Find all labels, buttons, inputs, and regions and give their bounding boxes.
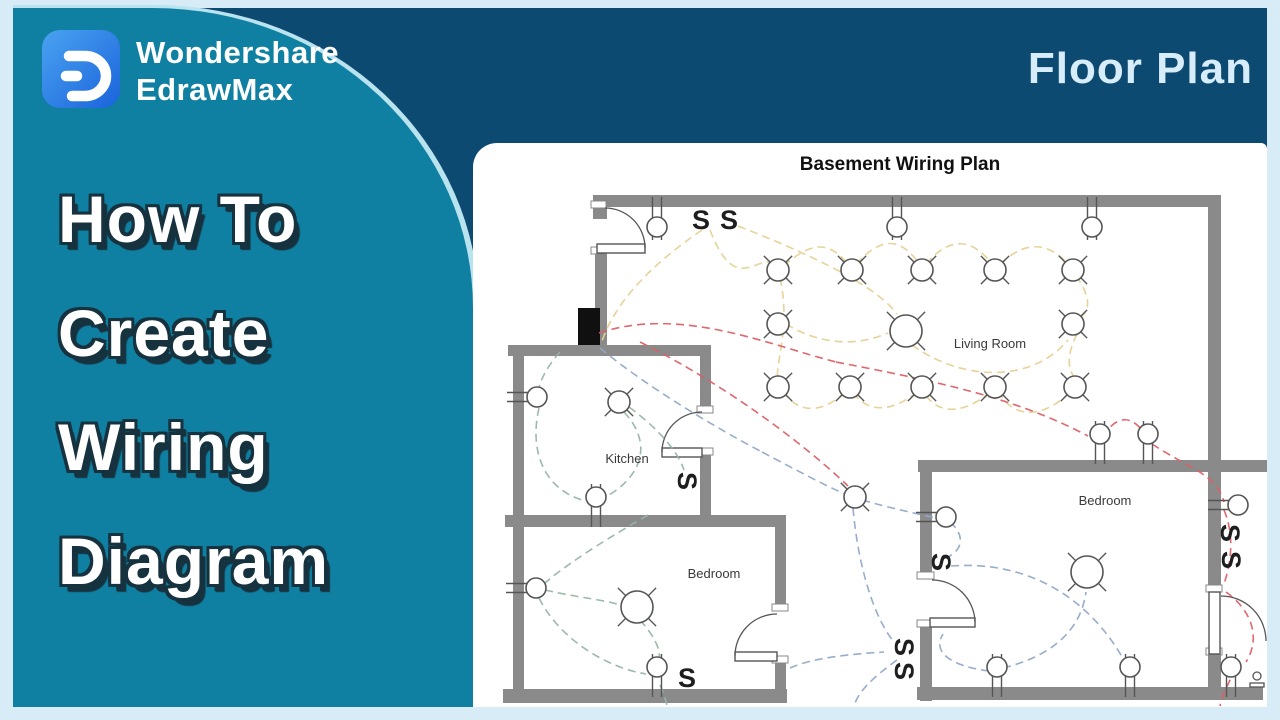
wire-branch-blue (940, 634, 989, 671)
wall (775, 662, 786, 703)
switch-symbol: S (692, 205, 710, 235)
wire-lighting-circuit (999, 392, 1070, 412)
light-ray (1081, 310, 1087, 316)
ceiling-light-icon (841, 259, 863, 281)
electrical-panel (578, 308, 600, 345)
ceiling-light-icon (1062, 313, 1084, 335)
brand-line-edrawmax: EdrawMax (136, 71, 339, 108)
light-ray (648, 618, 656, 626)
ceiling-light-icon (984, 259, 1006, 281)
wall-sconce-icon (1228, 495, 1248, 515)
wire-lighting-circuit (783, 391, 845, 408)
wall (513, 345, 524, 515)
wire-branch-blue (948, 522, 960, 557)
wall (513, 515, 524, 701)
wire-power-circuit (1224, 510, 1231, 584)
wire-lighting-circuit (856, 244, 918, 265)
light-ray (930, 373, 936, 379)
wall-fixture-icon (1138, 424, 1158, 444)
door-leaf (662, 448, 702, 457)
wire-power-circuit (1226, 592, 1253, 662)
switch-symbol: S (678, 663, 696, 693)
light-ray (1061, 395, 1067, 401)
light-ray (930, 278, 936, 284)
room-label: Bedroom (1079, 493, 1132, 508)
light-ray (605, 388, 611, 394)
headline-line-3: Wiring (58, 390, 329, 504)
wire-power-circuit (836, 362, 1088, 436)
floor-plan-drawing: SSSSSSSSSLiving RoomKitchenBedroomBedroo… (473, 143, 1267, 707)
ceiling-light-icon (767, 313, 789, 335)
light-ray (764, 332, 770, 338)
ceiling-light-icon (890, 315, 922, 347)
wire-lighting-circuit (1069, 334, 1077, 378)
door-leaf (1209, 592, 1220, 654)
light-ray (908, 373, 914, 379)
ceiling-light-icon (767, 376, 789, 398)
door-swing-arc (605, 208, 645, 248)
room-label: Kitchen (605, 451, 648, 466)
door-swing-arc (662, 412, 702, 452)
door-jamb (772, 604, 788, 611)
light-ray (1068, 583, 1076, 591)
brand-line-wondershare: Wondershare (136, 34, 339, 71)
wire-branch-blue (853, 508, 894, 642)
ceiling-light-icon (1064, 376, 1086, 398)
logo-glyph-icon (42, 30, 120, 108)
door-swing-arc (932, 580, 975, 622)
light-ray (605, 410, 611, 416)
ceiling-light-icon (844, 486, 866, 508)
door-leaf (930, 618, 975, 627)
door-leaf (597, 244, 645, 253)
wall (1221, 460, 1267, 472)
wall (1208, 654, 1221, 700)
light-ray (1003, 373, 1009, 379)
electrical-panel-icon (578, 308, 600, 345)
wall (508, 345, 711, 356)
light-ray (618, 618, 626, 626)
light-ray (618, 588, 626, 596)
room-label: Bedroom (688, 566, 741, 581)
light-ray (1003, 278, 1009, 284)
wall-fixture-icon (586, 487, 606, 507)
light-ray (786, 373, 792, 379)
light-ray (786, 310, 792, 316)
headline-line-2: Create (58, 276, 329, 390)
door-jamb (917, 572, 934, 579)
wire-lighting-circuit (710, 230, 775, 268)
door-jamb (591, 201, 606, 208)
ceiling-light-icon (984, 376, 1006, 398)
light-ray (1083, 395, 1089, 401)
light-ray (764, 373, 770, 379)
light-ray (764, 395, 770, 401)
wall-fixture-icon (1082, 217, 1102, 237)
light-ray (836, 373, 842, 379)
ceiling-light-icon (1062, 259, 1084, 281)
light-ray (1003, 395, 1009, 401)
wire-lighting-circuit (786, 324, 888, 342)
wall-sconce-icon (527, 387, 547, 407)
light-ray (838, 278, 844, 284)
light-ray (1059, 332, 1065, 338)
switch-symbol: S (889, 638, 919, 656)
wire-branch-blue (790, 652, 884, 668)
light-ray (841, 505, 847, 511)
room-label: Living Room (954, 336, 1026, 351)
light-ray (858, 373, 864, 379)
wall-sconce-icon (526, 578, 546, 598)
light-ray (981, 395, 987, 401)
wall (593, 195, 1220, 207)
doorbell-icon (1253, 672, 1261, 680)
light-ray (887, 342, 895, 350)
light-ray (764, 278, 770, 284)
wire-branch-green (536, 408, 586, 501)
light-ray (1098, 553, 1106, 561)
light-ray (1059, 310, 1065, 316)
ceiling-light-icon (1071, 556, 1103, 588)
edrawmax-logo-icon (42, 30, 120, 108)
light-ray (786, 278, 792, 284)
wall-sconces (506, 387, 1248, 598)
room-labels: Living RoomKitchenBedroomBedroom (605, 336, 1131, 581)
wire-branch-green (545, 590, 620, 605)
wall (503, 689, 787, 703)
switch-symbol: S (720, 205, 738, 235)
switch-symbol: S (672, 472, 702, 490)
light-ray (627, 388, 633, 394)
headline-line-4: Diagram (58, 504, 329, 618)
wire-lighting-circuit (926, 244, 992, 264)
switch-symbol: S (926, 553, 956, 571)
wire-branch-blue (1003, 592, 1086, 668)
switch-symbol: S (889, 662, 919, 680)
light-ray (863, 505, 869, 511)
wall (1208, 195, 1221, 466)
light-ray (1083, 373, 1089, 379)
light-ray (648, 588, 656, 596)
light-ray (1059, 278, 1065, 284)
light-ray (1003, 256, 1009, 262)
ceiling-light-icon (767, 259, 789, 281)
wall (775, 515, 786, 610)
door-swing-arc (735, 614, 777, 656)
light-ray (1059, 256, 1065, 262)
ceiling-light-icon (839, 376, 861, 398)
wall-fixture-icon (647, 217, 667, 237)
wire-branch-blue (762, 452, 845, 494)
ceiling-light-icon (621, 591, 653, 623)
wall-fixture-icon (1221, 657, 1241, 677)
door-swing-arc (1221, 596, 1266, 641)
switch-symbol: S (1216, 551, 1246, 569)
light-ray (1081, 278, 1087, 284)
wall-sconce-icon (936, 507, 956, 527)
wall-fixture-icon (887, 217, 907, 237)
wall-fixture-icon (1090, 424, 1110, 444)
wire-lighting-circuit (738, 226, 897, 314)
ceiling-light-icon (608, 391, 630, 413)
light-ray (1068, 553, 1076, 561)
ceiling-light-icon (911, 376, 933, 398)
wire-power-circuit (599, 324, 836, 362)
wall-fixture-icon (987, 657, 1007, 677)
doorbell-base (1250, 683, 1264, 687)
light-ray (981, 373, 987, 379)
light-ray (1081, 256, 1087, 262)
brand-text: Wondershare EdrawMax (136, 34, 339, 108)
light-ray (786, 332, 792, 338)
plan-title: Basement Wiring Plan (800, 154, 1000, 175)
wall (700, 345, 711, 412)
doorbell (1250, 672, 1264, 687)
light-ray (1061, 373, 1067, 379)
light-ray (1081, 332, 1087, 338)
wall (918, 460, 1215, 472)
light-ray (764, 310, 770, 316)
wire-power-circuit (640, 342, 848, 486)
headline-line-1: How To (58, 162, 329, 276)
wall-fixture-icon (647, 657, 667, 677)
door-jamb (1206, 585, 1222, 592)
ceiling-light-icon (911, 259, 933, 281)
topic-badge: Floor Plan (1028, 44, 1253, 94)
light-ray (981, 278, 987, 284)
light-ray (1098, 583, 1106, 591)
light-ray (908, 278, 914, 284)
switch-symbol: S (1215, 524, 1245, 542)
light-ray (917, 312, 925, 320)
light-ray (887, 312, 895, 320)
floor-plan-panel: SSSSSSSSSLiving RoomKitchenBedroomBedroo… (473, 143, 1267, 707)
wall-fixture-icon (1120, 657, 1140, 677)
light-ray (786, 395, 792, 401)
door-leaf (735, 652, 777, 661)
video-headline: How To Create Wiring Diagram (58, 162, 329, 618)
wire-lighting-circuit (1000, 247, 1068, 264)
light-ray (863, 483, 869, 489)
light-ray (836, 395, 842, 401)
